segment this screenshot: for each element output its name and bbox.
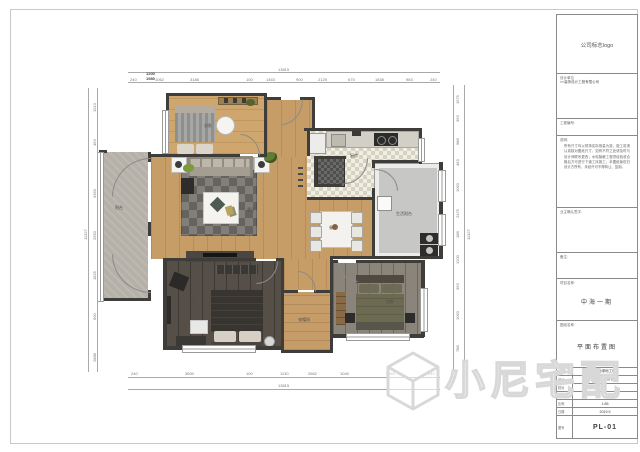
dim-line-right-overall	[464, 85, 465, 372]
dim-value: 13815	[278, 384, 289, 388]
dim-value: 1130	[280, 372, 289, 376]
cooktop-burner-2	[388, 136, 397, 145]
bedroom2-bed-foot-blanket	[356, 322, 404, 330]
bedroom2-bed-duvet	[356, 294, 404, 323]
floor-plan: 次卧 厨房 客厅 阳台 餐厅 生活阳台 主卧 衣帽间 次卧 13815 1200…	[0, 0, 640, 452]
dim-value: 1838	[375, 78, 384, 82]
wall	[304, 128, 422, 131]
bedroom1-round-table	[216, 116, 235, 135]
dining-chair-2	[310, 226, 322, 238]
row-value: 2019.9	[573, 410, 637, 414]
dim-value: 788	[456, 345, 460, 352]
dim-value: 600	[93, 313, 97, 320]
room-label-bedroom1: 次卧	[204, 124, 212, 128]
row-label: 校对	[557, 384, 573, 391]
master-tv-icon	[167, 296, 171, 324]
project-name: 中海一期	[557, 297, 637, 306]
utility-window-2	[438, 214, 446, 246]
table-row: 设计 华通环境设计师	[557, 376, 637, 384]
kitchen-side-window	[418, 138, 425, 162]
wall	[264, 93, 267, 157]
dim-line-right-segments	[453, 85, 454, 372]
bedroom2-pillow-1	[359, 284, 379, 293]
room-label-cloak: 衣帽间	[298, 318, 310, 322]
wall	[307, 197, 375, 200]
dim-value: 100	[246, 78, 253, 82]
dim-value: 1463	[266, 78, 275, 82]
dim-line-left-segments	[97, 88, 98, 372]
row-value: 1:85	[573, 402, 637, 406]
balcony-window	[97, 152, 104, 302]
master-bed-pillow-1	[214, 331, 236, 342]
plant-pot-right-icon	[258, 161, 265, 168]
logo-section: 公司标志logo	[557, 15, 637, 74]
table-row: 制图 上海绿地工程	[557, 368, 637, 376]
dining-chair-1	[310, 212, 322, 224]
row-label: 设计	[557, 376, 573, 383]
dim-value: 463	[456, 159, 460, 166]
dim-value: 363	[456, 115, 460, 122]
dim-value: 3063	[386, 372, 395, 376]
wall	[166, 93, 267, 96]
dim-value: 3188	[190, 78, 199, 82]
wall	[314, 156, 317, 187]
wall	[281, 350, 333, 353]
dim-value: 3600	[185, 372, 194, 376]
project-no-section: 工程编号:	[557, 119, 637, 136]
dining-chair-4	[351, 212, 363, 224]
bedroom1-window	[162, 110, 169, 154]
shower-floor	[317, 158, 345, 187]
dim-value: 3363	[93, 189, 97, 198]
wall	[281, 258, 284, 352]
drawing-no-row: 图号 PL-01	[557, 416, 637, 438]
title-block: 公司标志logo 设计单位 ××装饰设计工程有限公司 工程编号: 说明: 所有尺…	[556, 14, 638, 439]
wall	[150, 154, 240, 157]
room-label-kitchen: 厨房	[350, 154, 358, 158]
dim-value: 13815	[278, 68, 289, 72]
wall	[265, 97, 281, 100]
drawing-name: 平面布置图	[557, 342, 637, 351]
notes-text: 所有尺寸均以现场实际测量为准，施工前请认真核对图纸尺寸，如有不符之处请及时与设计…	[560, 142, 634, 172]
dim-value: 2475	[456, 209, 460, 218]
dim-value: 2550	[93, 231, 97, 240]
wall	[307, 128, 310, 156]
bedroom2-window	[346, 333, 410, 341]
table-row: 比例 1:85	[557, 400, 637, 408]
drawing-no-value: PL-01	[573, 424, 637, 431]
wall	[163, 258, 256, 261]
dim-value: 240	[428, 372, 435, 376]
dining-chair-5	[351, 226, 363, 238]
bedroom2-nightstand-1	[345, 313, 355, 323]
room-label-master: 主卧	[188, 300, 196, 304]
dim-value: 1200	[456, 255, 460, 264]
room-label-bedroom2: 次卧	[386, 300, 394, 304]
bedroom1-bed-pillow-1	[177, 144, 194, 154]
kitchen-sink-icon	[331, 134, 346, 147]
dim-value: 1063	[456, 183, 460, 192]
room-label-living: 客厅	[247, 208, 255, 212]
project-name-section: 项目名称: 中海一期	[557, 279, 637, 321]
dim-value: 675	[348, 78, 355, 82]
wall	[283, 290, 298, 293]
project-no-label: 工程编号:	[560, 121, 634, 125]
plant-pot-left-icon	[175, 161, 182, 168]
utility-window-1	[438, 170, 446, 202]
dim-value: 2662	[308, 372, 317, 376]
dim-line-left-overall	[88, 88, 89, 372]
info-table: 制图 上海绿地工程 设计 华通环境设计师 校对 审核 比例 1:85 日期 20…	[557, 368, 637, 438]
sofa-cushions	[191, 159, 249, 167]
company-section: 设计单位 ××装饰设计工程有限公司	[557, 74, 637, 119]
row-value: 华通环境设计师	[573, 377, 637, 382]
drawing-name-label: 图纸名称:	[560, 323, 634, 327]
wall	[331, 260, 338, 263]
washer-drum-2	[426, 247, 433, 254]
kitchen-appliance	[352, 131, 361, 136]
company-logo: 公司标志logo	[557, 41, 637, 49]
master-rug	[190, 320, 208, 334]
dim-value: 1063	[456, 311, 460, 320]
dim-value: 1575	[456, 95, 460, 104]
wall	[314, 290, 333, 293]
dim-line-top-segments	[128, 82, 440, 83]
dim-line-bottom-overall	[128, 389, 440, 390]
green-plant-icon	[183, 164, 194, 172]
dim-value: 463	[93, 139, 97, 146]
dim-value: 11327	[467, 229, 471, 240]
master-bed-duvet	[211, 290, 263, 332]
drawing-no-label: 图号	[557, 416, 573, 438]
dim-value: 983	[406, 78, 413, 82]
bedroom2-nightstand-2	[405, 313, 415, 323]
dim-value: 240	[430, 78, 437, 82]
dim-line-bottom-segments	[128, 377, 440, 378]
bedroom2-pillow-2	[382, 284, 402, 293]
drawing-name-section: 图纸名称: 平面布置图	[557, 321, 637, 368]
bedroom2-bay-window	[420, 288, 428, 332]
dim-value: 188	[456, 231, 460, 238]
wall	[314, 184, 341, 187]
table-row: 校对	[557, 384, 637, 392]
row-label: 审核	[557, 392, 573, 399]
water-heater	[377, 196, 392, 211]
room-label-utility: 生活阳台	[396, 212, 412, 216]
row-label: 制图	[557, 368, 573, 375]
wall	[372, 160, 375, 168]
dim-value: 2888	[93, 353, 97, 362]
dim-value: 900	[296, 78, 303, 82]
row-label: 比例	[557, 400, 573, 407]
wall	[99, 298, 151, 301]
table-row: 日期 2019.9	[557, 408, 637, 416]
wall	[163, 258, 166, 348]
floor-lamp-left	[181, 178, 194, 194]
corridor-shelf	[298, 165, 303, 187]
wall	[356, 260, 425, 263]
room-label-balcony: 阳台	[115, 206, 123, 210]
dining-chair-6	[351, 240, 363, 252]
dim-value: 1062	[155, 78, 164, 82]
tv-icon	[203, 253, 237, 257]
dim-value: 1825	[93, 271, 97, 280]
notes-section: 说明: 所有尺寸均以现场实际测量为准，施工前请认真核对图纸尺寸，如有不符之处请及…	[557, 136, 637, 208]
dining-chair-3	[310, 240, 322, 252]
washer-drum-1	[426, 235, 433, 242]
wall	[372, 160, 422, 163]
project-name-label: 项目名称:	[560, 281, 634, 285]
bedroom1-bed-pillow-2	[196, 144, 213, 154]
master-bed-pillow-2	[239, 331, 261, 342]
owner-sign-label: 业主确认签字:	[560, 210, 634, 214]
dim-value: 11327	[84, 229, 88, 240]
dim-value: 240	[131, 372, 138, 376]
table-row: 审核	[557, 392, 637, 400]
dim-value: 240	[130, 78, 137, 82]
cooktop-burner-1	[377, 136, 386, 145]
dim-value: 1040	[340, 372, 349, 376]
wall	[148, 222, 151, 236]
dim-value: 100	[246, 372, 253, 376]
master-window	[182, 345, 256, 353]
owner-sign-section: 业主确认签字:	[557, 208, 637, 253]
dim-value: 988	[456, 138, 460, 145]
room-label-dining: 餐厅	[329, 226, 337, 230]
remark-label: 备注:	[560, 255, 634, 259]
dim-line-top-overall	[128, 72, 440, 73]
dim-value: 363	[456, 283, 460, 290]
bedroom2-bed-headboard	[356, 275, 404, 283]
wall	[312, 97, 315, 131]
bedroom1-plant-icon	[246, 99, 255, 106]
bedroom1-bed-headboard	[175, 106, 215, 113]
dim-value: 1513	[93, 103, 97, 112]
wall	[314, 156, 346, 159]
master-wardrobe	[216, 265, 258, 274]
dim-value: 1980	[146, 77, 155, 81]
remark-section: 备注:	[557, 253, 637, 279]
wall	[372, 256, 443, 259]
wall	[331, 256, 372, 259]
company-value: ××装饰设计工程有限公司	[560, 80, 634, 84]
dim-value: 2125	[318, 78, 327, 82]
row-label: 日期	[557, 408, 573, 415]
row-value: 上海绿地工程	[573, 369, 637, 374]
